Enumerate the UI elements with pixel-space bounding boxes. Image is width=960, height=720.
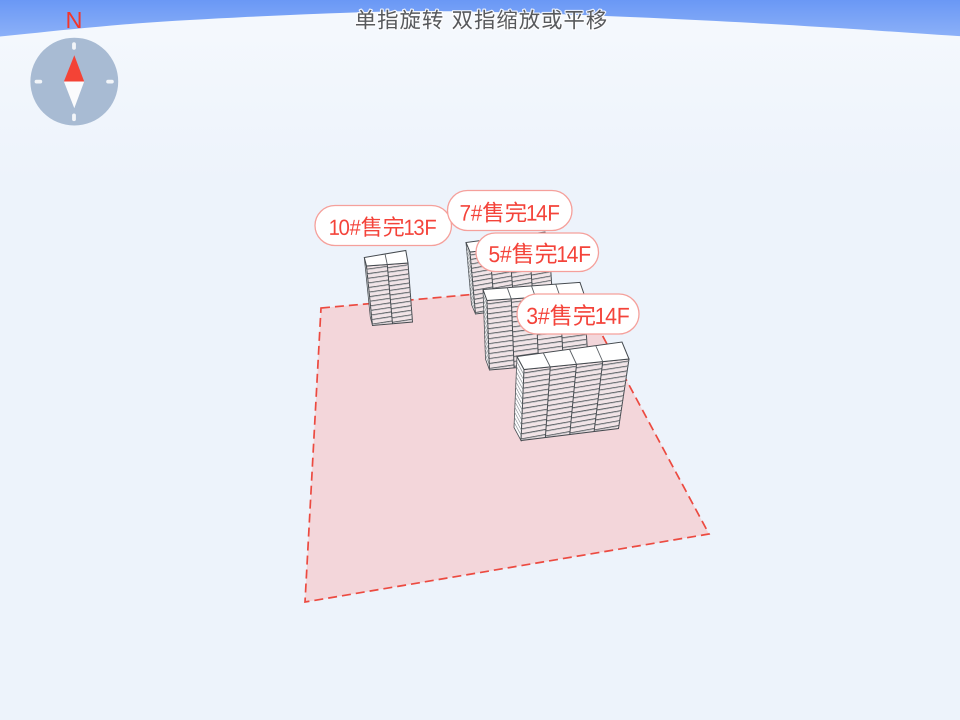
svg-text:N: N bbox=[66, 7, 83, 33]
